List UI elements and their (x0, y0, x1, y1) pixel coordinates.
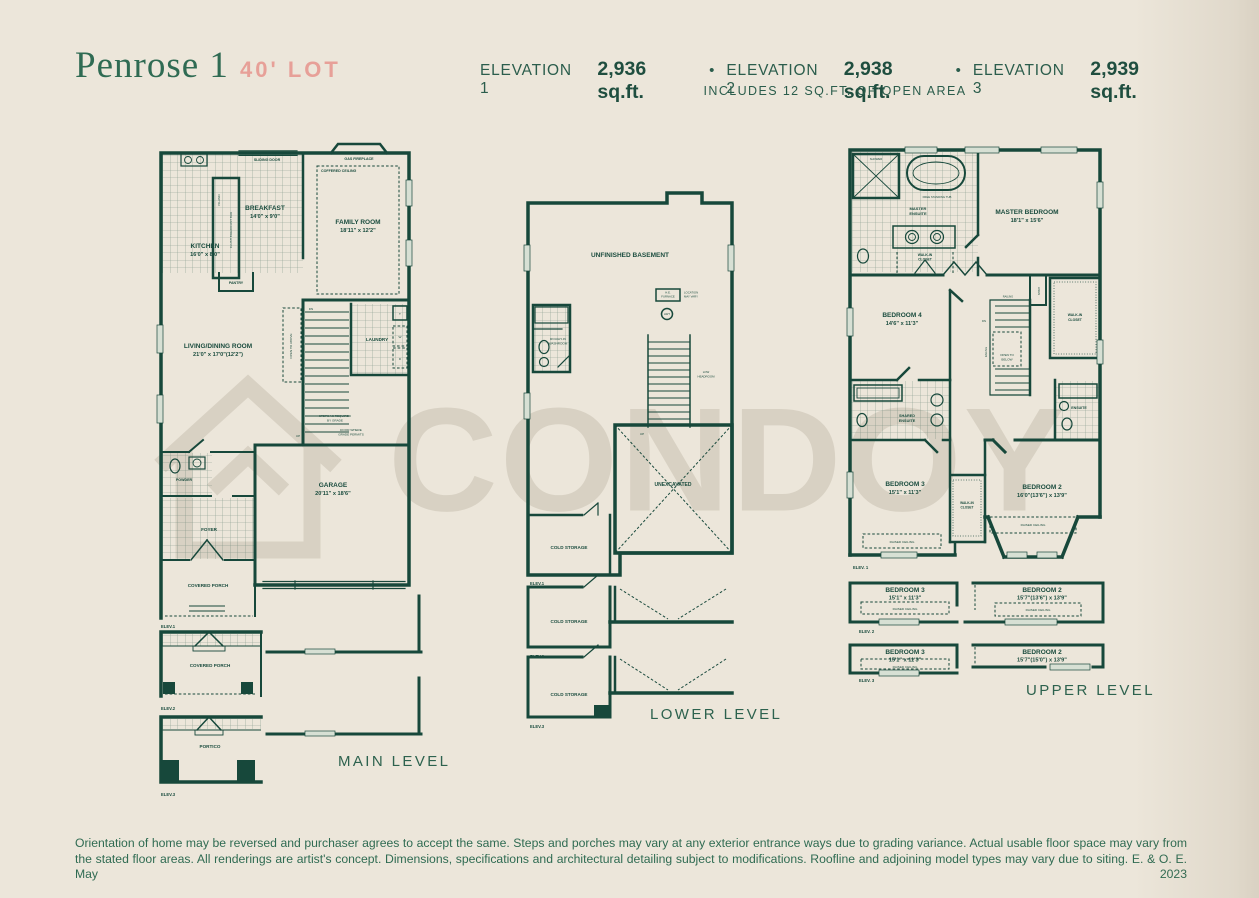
room-label-breakfast: BREAKFAST (245, 205, 285, 212)
lot-size-label: 40' LOT (240, 57, 341, 83)
sliding-door-label: SLIDING DOOR (254, 158, 281, 162)
raised-ceiling-bed3-e2: RAISED CEILING (893, 607, 918, 611)
room-dims-family: 18'11" x 12'2" (340, 228, 376, 234)
wic-right-label-1: WALK-IN (1068, 313, 1083, 317)
window (847, 308, 853, 336)
washroom-label-1: ROUGH-IN (550, 337, 566, 341)
room-dims-bed4: 14'6" x 11'3" (886, 321, 919, 327)
window (847, 472, 853, 498)
room-label-bed2: BEDROOM 2 (1022, 484, 1062, 491)
window (157, 395, 163, 423)
lower-level-walls (528, 193, 732, 575)
room-label-covered-porch-e2: COVERED PORCH (190, 663, 231, 668)
room-dims-bed2-e3: 15'7"(15'0") x 13'9" (1017, 658, 1067, 664)
master-wic-label-1: WALK-IN (918, 253, 933, 257)
window (965, 147, 999, 153)
open-to-below-2: BELOW (1001, 358, 1012, 362)
railing-vertical-label: RAILING (984, 347, 988, 357)
room-dims-garage: 20'11" x 18'6" (315, 491, 351, 497)
room-label-bed4: BEDROOM 4 (882, 312, 922, 319)
flush-breakfast-bar-label: FLUSH BREAKFAST BAR (229, 211, 233, 248)
island-label: ISLAND (217, 194, 221, 206)
room-label-cold-storage: COLD STORAGE (551, 545, 588, 550)
raised-ceiling-bed2: RAISED CEILING (1021, 523, 1046, 527)
elev2-tag: ELEV. 2 (859, 629, 875, 634)
low-headroom-2: HEADROOM (697, 375, 715, 379)
elev1-tag: ELEV.1 (161, 624, 176, 629)
raised-ceiling-bed3-e3: RAISED CEILING (893, 665, 918, 669)
window (905, 147, 937, 153)
window (524, 245, 530, 271)
window (406, 180, 412, 206)
cold-storage-elev2 (528, 575, 732, 647)
lower-level-caption: LOWER LEVEL (650, 706, 782, 723)
free-standing-tub-label: FREE STANDING TUB (923, 195, 952, 199)
separator-dot: • (709, 62, 714, 79)
room-dims-bed3-e3: 15'1" x 11'3" (889, 658, 922, 664)
gas-fireplace-label: GAS FIREPLACE (344, 157, 374, 161)
room-label-portico: PORTICO (200, 744, 221, 749)
door-note-1: DOOR WHERE (340, 428, 362, 432)
stairs-dn-label: DN (309, 307, 313, 311)
upper-level-floorplan: SHOWER FREE STANDING TUB MASTER ENSUITE … (845, 140, 1135, 705)
shower-label: SHOWER (870, 157, 883, 161)
room-dims-bed2: 16'0"(13'6") x 13'9" (1017, 493, 1067, 499)
room-label-kitchen: KITCHEN (191, 243, 220, 250)
elev3-tag: ELEV.3 (530, 724, 545, 729)
room-label-foyer: FOYER (201, 527, 218, 532)
room-label-bed3-e2: BEDROOM 3 (885, 587, 925, 594)
model-title: Penrose 1 (75, 44, 229, 87)
wic-right-label-2: CLOSET (1068, 318, 1083, 322)
room-label-covered-porch: COVERED PORCH (188, 583, 229, 588)
shared-ensuite-label-2: ENSUITE (899, 419, 916, 423)
bay-window (1007, 552, 1027, 558)
room-dims-bed2-e2: 15'7"(13'6") x 13'9" (1017, 596, 1067, 602)
room-label-powder: POWDER (176, 478, 193, 482)
separator-dot: • (956, 62, 961, 79)
elev1-tag: ELEV.1 (530, 581, 545, 586)
window (157, 325, 163, 353)
room-dims-bed3: 15'1" x 11'3" (889, 490, 922, 496)
disclaimer-text: Orientation of home may be reversed and … (75, 836, 1187, 883)
window (881, 552, 917, 558)
elev3-tag: ELEV. 3 (859, 678, 875, 683)
stairs-dn-label: DN (982, 319, 986, 323)
master-wic-label-2: CLOSET (918, 258, 933, 262)
room-dims-breakfast: 14'0" x 9'0" (250, 214, 280, 220)
pantry-label: PANTRY (229, 281, 244, 285)
hwt-label: HWT (664, 312, 670, 316)
open-to-below-1: OPEN TO (1000, 353, 1014, 357)
floorplan-sheet: { "header": { "title": "Penrose 1", "lot… (0, 0, 1259, 898)
ensuite-label: ENSUITE (1071, 406, 1087, 410)
bay-window (1037, 552, 1057, 558)
shared-ensuite-label-1: SHARED (899, 414, 915, 418)
master-ensuite-label-2: ENSUITE (909, 211, 927, 216)
window (406, 240, 412, 266)
room-label-cold-storage-e3: COLD STORAGE (551, 692, 588, 697)
room-label-basement: UNFINISHED BASEMENT (591, 252, 669, 259)
room-label-bed3-e3: BEDROOM 3 (885, 649, 925, 656)
window (524, 393, 530, 419)
window (1097, 182, 1103, 208)
door-note-2: GRADE PERMITS (338, 433, 364, 437)
furnace-label-2: FURNACE (661, 295, 675, 299)
room-label-bed3: BEDROOM 3 (885, 481, 925, 488)
room-label-master: MASTER BEDROOM (995, 209, 1058, 216)
open-to-above-label: OPEN TO ABOVE (289, 333, 293, 358)
window (1097, 340, 1103, 364)
wic-middle-label-1: WALK-IN (960, 501, 974, 505)
room-label-unexcavated: UNEXCAVATED (655, 482, 692, 488)
room-label-family: FAMILY ROOM (335, 219, 380, 226)
main-level-floorplan: SLIDING DOOR GAS FIREPLACE COFFERED CEIL… (155, 140, 425, 805)
elev2-tag: ELEV.2 (530, 654, 545, 659)
elev3-tag: ELEV.3 (161, 792, 176, 797)
steps-note-1: STEPS AS REQUIRED (319, 414, 352, 418)
window (1041, 147, 1077, 153)
main-level-caption: MAIN LEVEL (338, 753, 450, 770)
room-label-bed2-e3: BEDROOM 2 (1022, 649, 1062, 656)
room-dims-master: 18'1" x 15'6" (1011, 218, 1044, 224)
washer-label: W (399, 335, 402, 339)
window (728, 245, 734, 271)
wic-middle-label-2: CLOSET (961, 506, 974, 510)
location-note-2: MAY VARY (684, 295, 698, 299)
low-headroom-1: LOW (703, 370, 710, 374)
room-label-laundry: LAUNDRY (366, 337, 388, 342)
coffered-ceiling-label: COFFERED CEILING (321, 169, 357, 173)
raised-ceiling-bed3: RAISED CEILING (890, 540, 915, 544)
room-label-living-dining: LIVING/DINING ROOM (184, 343, 252, 350)
elev1-tag: ELEV. 1 (853, 565, 869, 570)
room-label-garage: GARAGE (319, 482, 348, 489)
room-dims-living-dining: 21'0" x 17'0"(12'2") (193, 352, 243, 358)
laundry-tub-label: T (399, 312, 401, 316)
linen-label: LINEN (1037, 287, 1041, 295)
lower-level-floorplan: UNFINISHED BASEMENT H.E. FURNACE LOCATIO… (520, 185, 750, 745)
steps-note-2: BY GRADE (327, 419, 343, 423)
elev2-tag: ELEV.2 (161, 706, 176, 711)
room-label-cold-storage-e2: COLD STORAGE (551, 619, 588, 624)
washroom-label-2: WASHROOM (549, 342, 568, 346)
upper-level-caption: UPPER LEVEL (1026, 682, 1155, 699)
room-dims-kitchen: 16'0" x 8'0" (190, 252, 220, 258)
stairs-up-label: UP (640, 432, 644, 436)
open-area-note: INCLUDES 12 SQ.FT. OF OPEN AREA (480, 84, 1190, 98)
room-label-bed2-e2: BEDROOM 2 (1022, 587, 1062, 594)
room-dims-bed3-e2: 15'1" x 11'3" (889, 596, 922, 602)
raised-ceiling-bed2-e2: RAISED CEILING (1026, 608, 1051, 612)
railing-label: RAILING (1003, 295, 1013, 299)
stairs-up-label: UP (296, 434, 300, 438)
